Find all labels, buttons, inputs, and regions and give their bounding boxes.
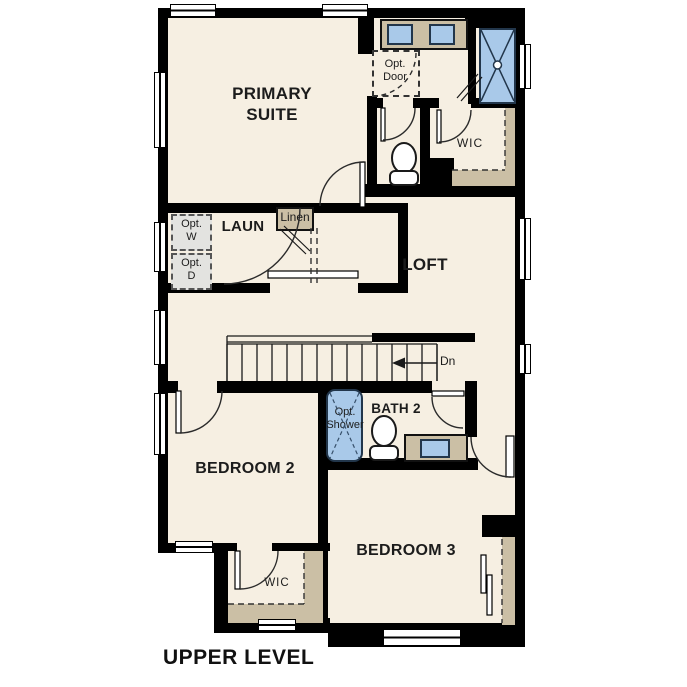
annotation-linen: Linen: [276, 211, 314, 225]
primary-wic-shelf: [452, 170, 515, 186]
room-label-bedroom-2: BEDROOM 2: [167, 459, 323, 479]
room-label-bath-2: BATH 2: [358, 401, 434, 418]
room-label-loft: LOFT: [385, 254, 465, 275]
window: [175, 541, 213, 553]
window: [383, 629, 461, 646]
window: [154, 310, 166, 365]
window: [519, 44, 531, 89]
annotation-stairs-down: Dn: [440, 355, 464, 369]
annotation-optional-washer: Opt. W: [178, 218, 205, 243]
wall: [420, 158, 454, 186]
window: [519, 344, 531, 374]
room-label-laundry: LAUN: [211, 218, 275, 237]
wall: [228, 543, 237, 551]
wall: [158, 381, 178, 393]
window: [519, 218, 531, 280]
wall: [482, 515, 515, 537]
annotation-optional-shower: Opt. Shower: [321, 406, 369, 431]
window: [322, 4, 368, 17]
wall: [420, 98, 430, 162]
window: [154, 393, 166, 455]
room-label-primary-wic: WIC: [448, 137, 492, 151]
wall: [468, 18, 476, 104]
wall: [367, 96, 377, 192]
wall: [272, 543, 330, 551]
room-label-bedroom-3: BEDROOM 3: [326, 541, 486, 561]
window: [170, 4, 216, 17]
wall: [367, 98, 383, 108]
wall: [465, 381, 477, 437]
sink: [420, 439, 450, 458]
annotation-optional-dryer: Opt. D: [178, 257, 205, 282]
sink: [387, 24, 413, 45]
wall: [398, 203, 408, 293]
plan-title: UPPER LEVEL: [163, 646, 393, 670]
annotation-optional-door: Opt. Door: [378, 58, 412, 83]
sink: [429, 24, 455, 45]
room-label-primary-suite: PRIMARY SUITE: [210, 83, 334, 126]
floor-plan: PRIMARY SUITE LOFT LAUN BEDROOM 2 BATH 2…: [0, 0, 687, 687]
window: [154, 72, 166, 148]
window: [258, 619, 296, 631]
wall: [372, 333, 475, 342]
room-label-bedroom2-wic: WIC: [255, 577, 299, 590]
primary-shower: [479, 28, 516, 104]
bedroom3-closet-shelf: [502, 537, 515, 625]
window: [154, 222, 166, 272]
wall: [358, 283, 408, 293]
